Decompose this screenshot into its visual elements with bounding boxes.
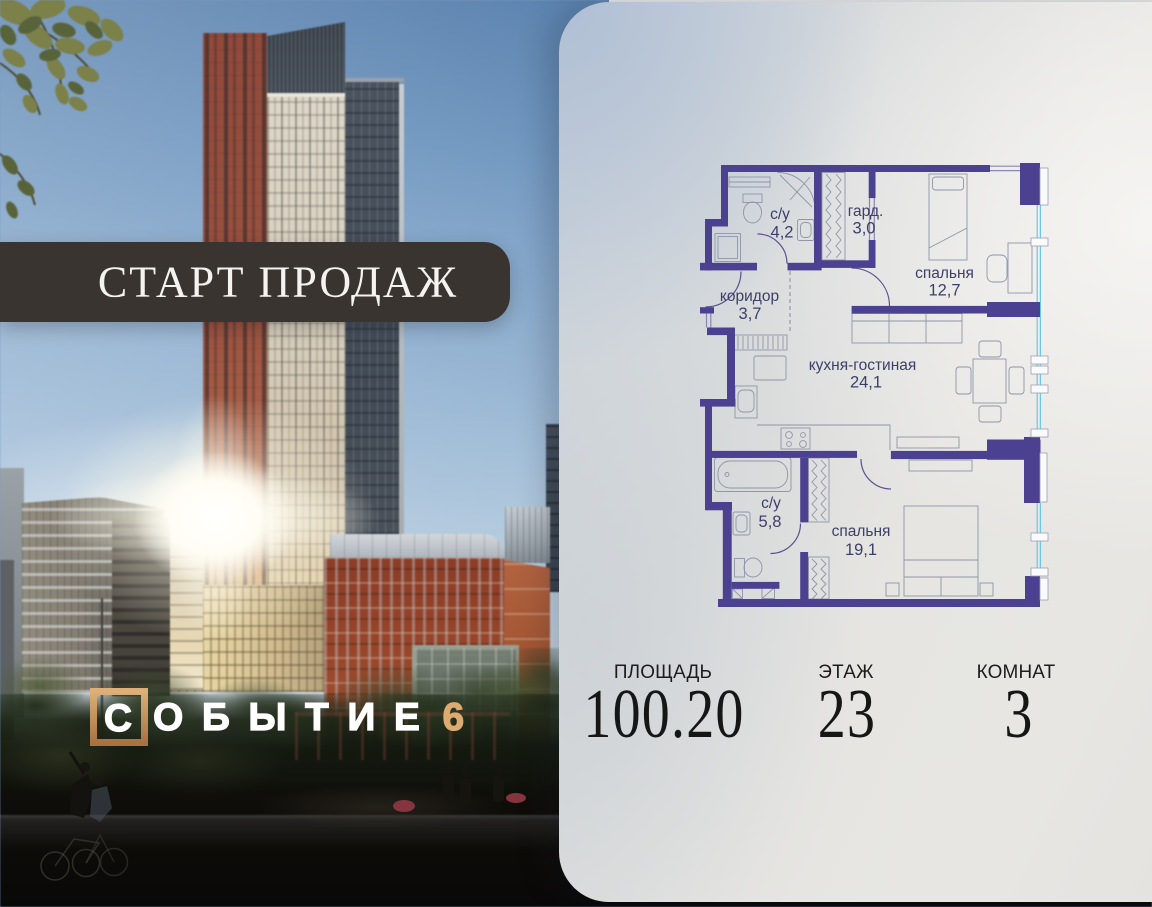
svg-text:12,7: 12,7: [928, 282, 960, 300]
svg-text:коридор: коридор: [720, 288, 779, 305]
svg-text:4,2: 4,2: [771, 224, 794, 242]
svg-text:19,1: 19,1: [845, 541, 877, 559]
svg-text:24,1: 24,1: [850, 374, 882, 392]
svg-text:3,0: 3,0: [853, 220, 876, 238]
svg-text:с/у: с/у: [761, 495, 781, 512]
svg-text:кухня-гостиная: кухня-гостиная: [809, 357, 917, 374]
svg-text:с/у: с/у: [770, 206, 790, 223]
svg-text:гард.: гард.: [848, 203, 884, 220]
svg-text:спальня: спальня: [832, 523, 891, 540]
svg-text:спальня: спальня: [915, 265, 974, 282]
svg-text:5,8: 5,8: [759, 513, 782, 531]
svg-text:3,7: 3,7: [739, 305, 762, 323]
